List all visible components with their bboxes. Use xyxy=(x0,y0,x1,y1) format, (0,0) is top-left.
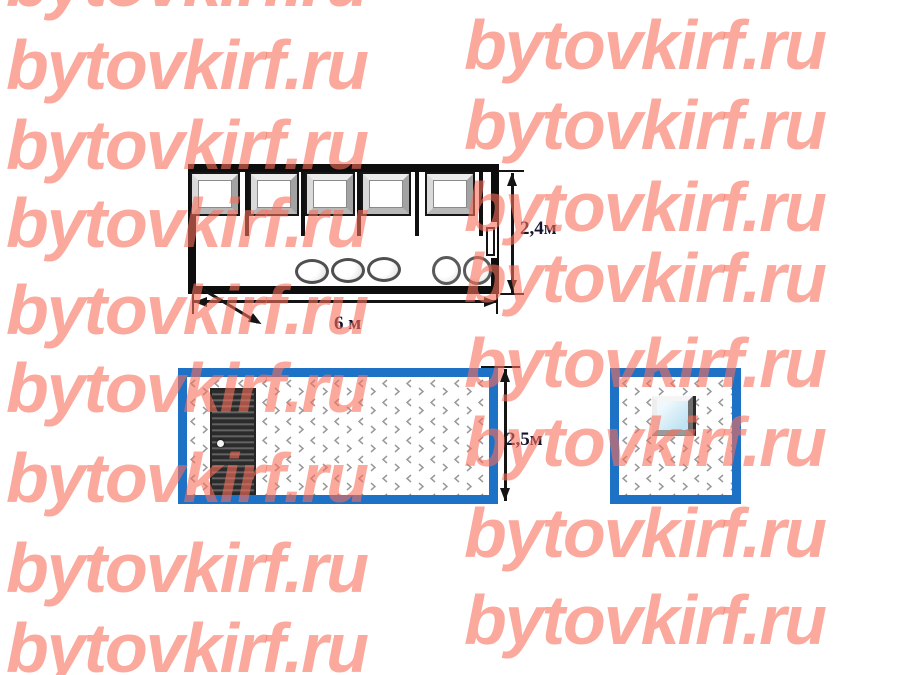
stool-oval xyxy=(331,258,365,283)
window-inner-line xyxy=(433,180,467,208)
dim-arrow-icon xyxy=(500,488,510,501)
wall-texture xyxy=(619,377,732,495)
dim-ext-line xyxy=(500,293,524,295)
end-window-glass xyxy=(652,396,693,435)
dim-line-width xyxy=(511,173,514,293)
window-inner-line xyxy=(369,180,403,208)
plan-window-square xyxy=(249,172,299,216)
dim-arrow-icon xyxy=(507,173,517,186)
dim-ext-line xyxy=(498,170,524,172)
partition-line xyxy=(245,172,249,236)
dim-arrow-icon xyxy=(507,280,517,293)
stool-round xyxy=(432,256,461,285)
plan-window-square xyxy=(305,172,355,216)
stool-oval xyxy=(367,257,401,282)
end-elevation xyxy=(610,368,741,504)
watermark-text: bytovkirf.ru xyxy=(464,238,825,318)
partition-line xyxy=(415,172,419,236)
dim-ext-line xyxy=(481,366,520,368)
dim-arrow-icon xyxy=(484,297,497,307)
watermark-text: bytovkirf.ru xyxy=(464,5,825,85)
watermark-text: bytovkirf.ru xyxy=(464,85,825,165)
floor-plan xyxy=(188,164,499,294)
drawing-canvas: 6 м 2,4м 2,5м xyxy=(0,0,900,675)
watermark-text: bytovkirf.ru xyxy=(6,0,367,22)
watermark-layer: bytovkirf.rubytovkirf.rubytovkirf.rubyto… xyxy=(0,0,900,675)
stool-oval xyxy=(295,259,329,284)
partition-line xyxy=(479,172,483,236)
watermark-text: bytovkirf.ru xyxy=(6,25,367,105)
plan-side-window xyxy=(483,222,497,258)
plan-side-window-frame xyxy=(486,227,495,256)
plan-window-square xyxy=(425,172,475,216)
dim-line-length xyxy=(194,300,497,303)
watermark-text: bytovkirf.ru xyxy=(464,493,825,573)
watermark-text: bytovkirf.ru xyxy=(464,580,825,660)
dim-label-length: 6 м xyxy=(334,313,361,335)
watermark-text: bytovkirf.ru xyxy=(464,167,825,247)
stool-round xyxy=(463,256,492,285)
plan-window-square xyxy=(190,172,240,216)
dim-arrow-icon xyxy=(500,369,510,382)
watermark-text: bytovkirf.ru xyxy=(6,608,367,675)
plan-window-square xyxy=(361,172,411,216)
front-elevation xyxy=(178,368,498,504)
end-window xyxy=(652,396,696,436)
window-inner-line xyxy=(313,180,347,208)
dim-label-width: 2,4м xyxy=(520,218,557,240)
partition-line xyxy=(357,172,361,236)
entrance-door xyxy=(210,388,256,495)
watermark-text: bytovkirf.ru xyxy=(6,528,367,608)
dim-arrow-icon xyxy=(194,297,207,307)
window-inner-line xyxy=(198,180,232,208)
door-handle-icon xyxy=(217,440,224,447)
partition-line xyxy=(301,172,305,236)
window-inner-line xyxy=(257,180,291,208)
dim-label-height: 2,5м xyxy=(506,429,543,451)
